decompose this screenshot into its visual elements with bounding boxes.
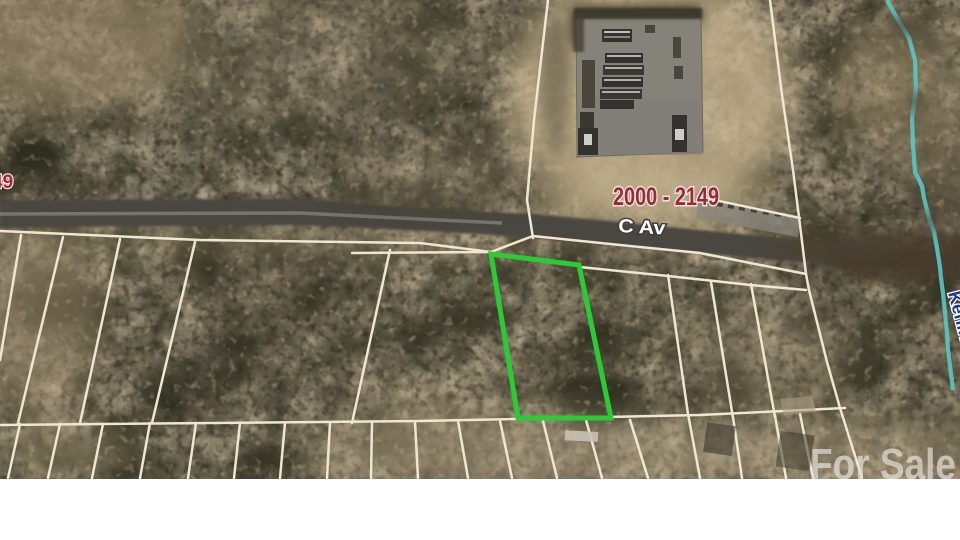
svg-text:C Av: C Av xyxy=(618,216,667,239)
svg-text:49: 49 xyxy=(0,172,13,193)
svg-text:2000 - 2149: 2000 - 2149 xyxy=(613,183,719,211)
